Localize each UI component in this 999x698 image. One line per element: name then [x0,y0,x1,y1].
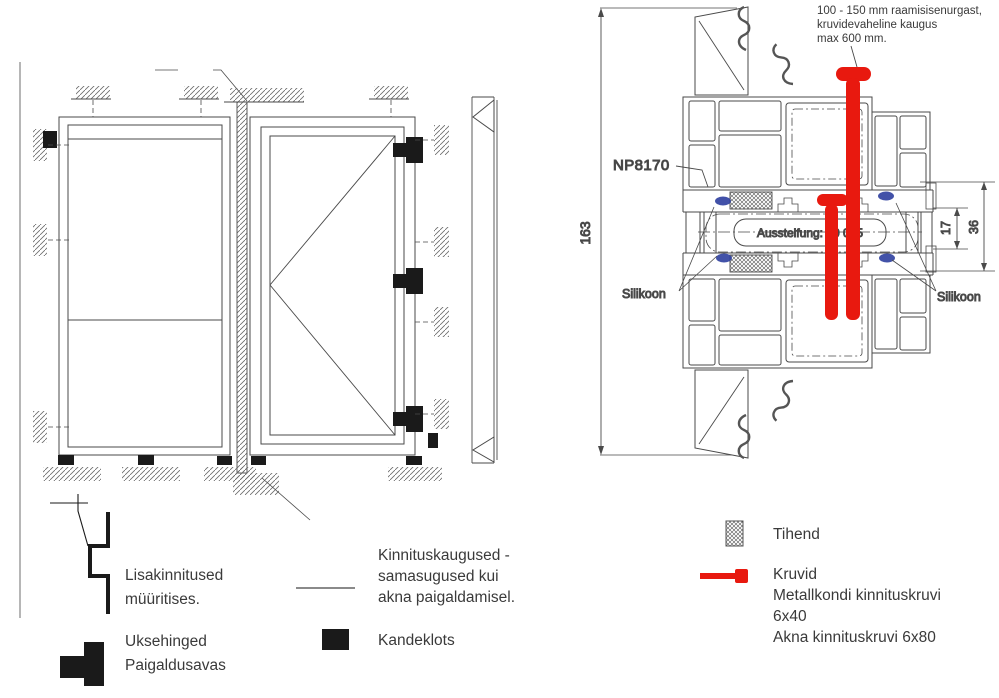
top-cover-profile [695,7,748,95]
extra-fixing-icon [50,494,108,614]
ground-hatch [43,467,442,481]
gasket-legend-icon [726,521,743,546]
bottom-cover-profile [695,370,748,458]
dimension-17-36 [920,182,995,272]
door-panel [250,117,415,455]
legend-screws-label: Kruvid Metallkondi kinnituskruvi 6x40 Ak… [773,564,941,648]
support-block-legend-icon [322,629,349,650]
note-leader-line [851,46,857,67]
screw-legend-icon [700,569,748,583]
legend-extra-fixing-label: Lisakinnitused müüritises. [125,564,223,612]
legend-gasket-label: Tihend [773,524,820,545]
door-hinge-legend-icon [60,642,104,686]
cross-section-drawing: Aussteifung: 40 015 [577,7,995,458]
screw-spacing-note: 100 - 150 mm raamisisenurgast, kruvideva… [817,4,997,46]
profile-code-label: NP8170 [613,157,670,174]
upper-frame-body [683,97,930,190]
silicone-right-label: Silikoon [937,290,981,304]
open-leaf-section [472,97,497,463]
lower-frame-body [683,275,930,368]
legend-support-block-label: Kandeklots [378,630,455,651]
fixed-panel [59,117,230,455]
legend-door-hinge-label: Uksehinged Paigaldusavas [125,630,226,678]
silicone-left-label: Silikoon [622,287,666,301]
dim-36-label: 36 [967,220,981,234]
plan-view-drawing [20,62,497,618]
technical-drawing-page: Aussteifung: 40 015 [0,0,999,698]
legend-fixing-distance-label: Kinnituskaugused - samasugused kui akna … [378,545,515,608]
dim-17-label: 17 [939,221,953,235]
dim-163-label: 163 [577,221,593,245]
